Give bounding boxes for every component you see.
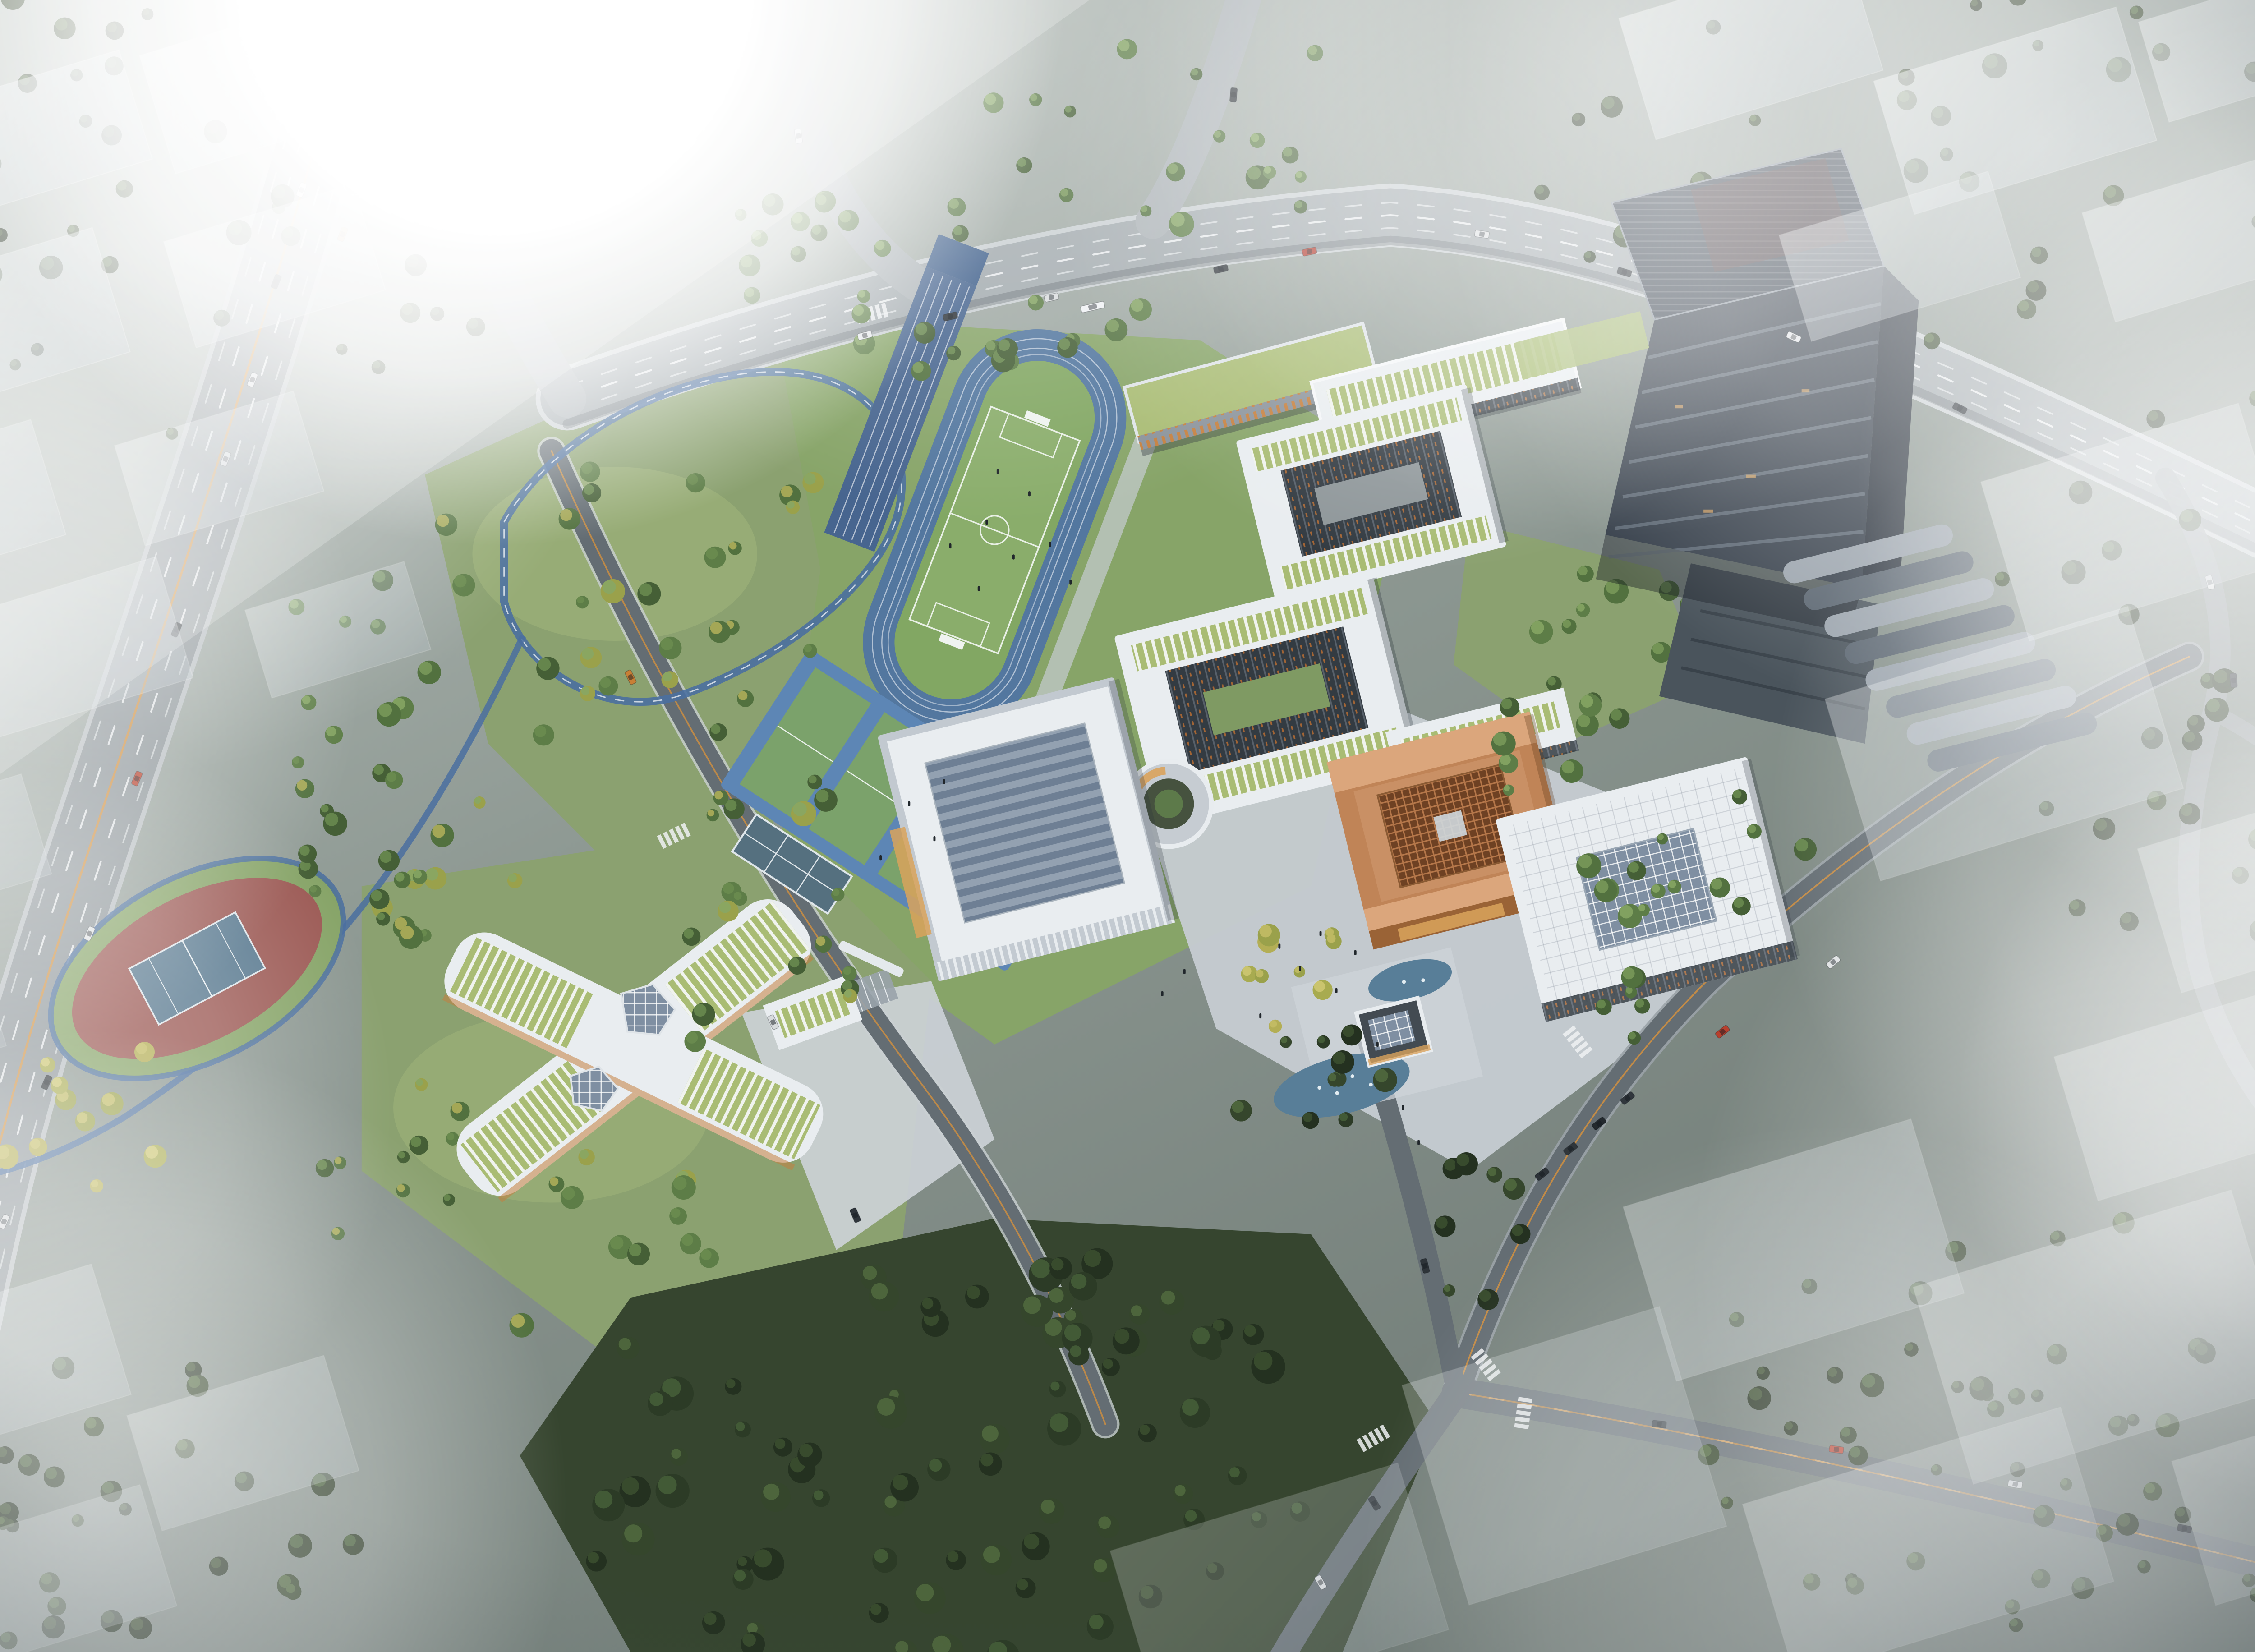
campus-aerial-rendering: 實 温州市实验中学 xyxy=(0,0,2255,1652)
render-viewport: 實 温州市实验中学 xyxy=(0,0,2255,1652)
vignette xyxy=(0,0,2255,1652)
